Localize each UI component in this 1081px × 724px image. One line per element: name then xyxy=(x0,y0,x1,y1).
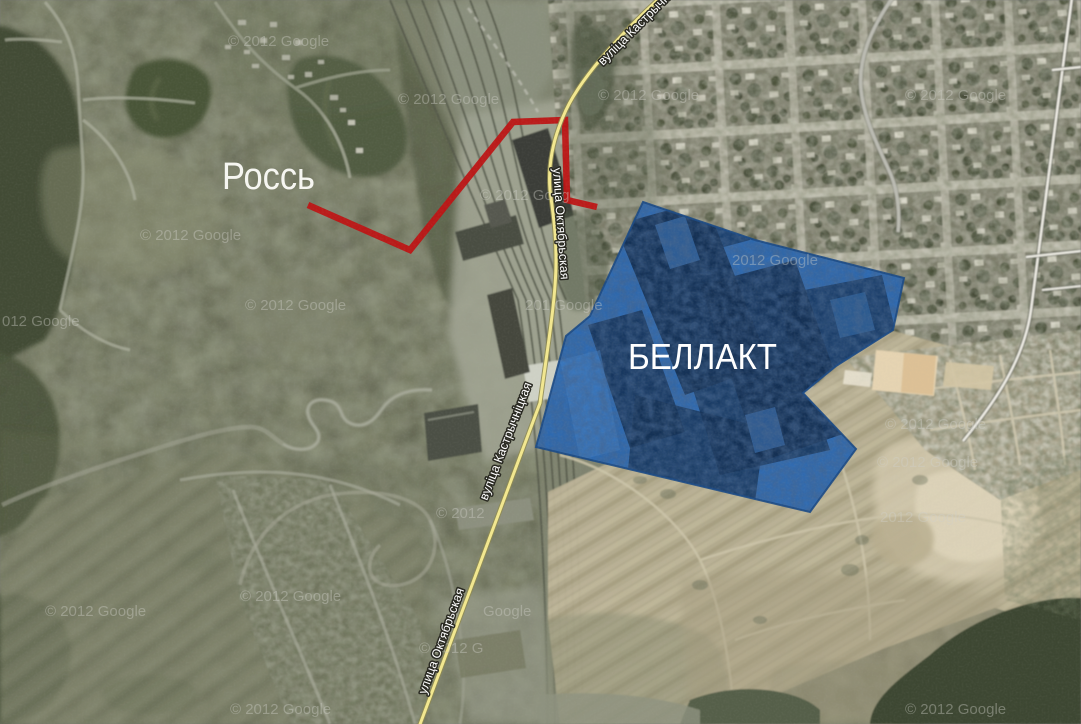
svg-text:Google: Google xyxy=(483,603,531,620)
svg-text:© 2012 Google: © 2012 Google xyxy=(45,603,146,620)
svg-text:2012 Google: 2012 Google xyxy=(732,252,818,269)
svg-text:© 2012 Google: © 2012 Google xyxy=(230,701,331,718)
svg-text:© 2012 Google: © 2012 Google xyxy=(398,91,499,108)
svg-text:© 2012 Google: © 2012 Google xyxy=(905,87,1006,104)
svg-text:© 2012 Google: © 2012 Google xyxy=(245,297,346,314)
svg-text:© 2012 Google: © 2012 Google xyxy=(228,33,329,50)
svg-text:© 2012 Google: © 2012 Google xyxy=(598,87,699,104)
svg-text:Россь: Россь xyxy=(222,156,315,198)
svg-text:БЕЛЛАКТ: БЕЛЛАКТ xyxy=(628,336,777,377)
svg-text:© 2012 Google: © 2012 Google xyxy=(240,588,341,605)
svg-text:© 2012 Google: © 2012 Google xyxy=(140,227,241,244)
svg-text:2012 Google: 2012 Google xyxy=(880,509,966,526)
svg-text:© 2012 Google: © 2012 Google xyxy=(877,454,978,471)
svg-text:© 2012 Google: © 2012 Google xyxy=(885,416,986,433)
svg-text:© 2012 Google: © 2012 Google xyxy=(905,701,1006,718)
svg-text:012 Google: 012 Google xyxy=(2,313,80,330)
svg-text:201 Google: 201 Google xyxy=(525,297,603,314)
svg-text:© 2012: © 2012 xyxy=(436,505,485,522)
